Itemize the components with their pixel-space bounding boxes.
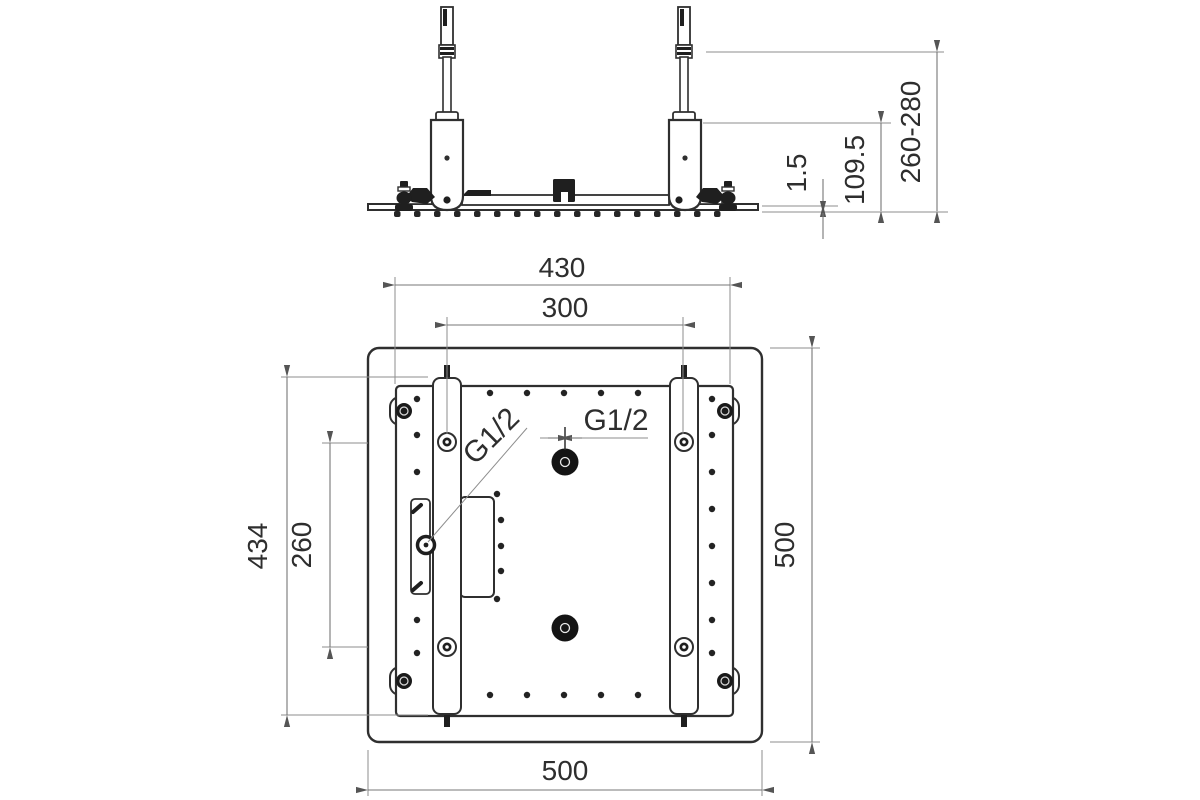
plan-view: G1/2 G1/2 430 300 434 260 <box>242 252 820 796</box>
rod-thread-mark <box>680 9 684 26</box>
label-inlet-top: G1/2 <box>583 404 648 437</box>
hanger-right <box>669 7 725 210</box>
corner-bolt <box>717 403 733 419</box>
bolt-base <box>719 204 737 211</box>
nut-band <box>677 52 691 55</box>
technical-drawing-page: 260-280 109.5 1.5 <box>0 0 1200 800</box>
nut-band <box>440 52 454 55</box>
dim-outer-height: 500 <box>769 522 800 569</box>
dim-height-range: 260-280 <box>895 81 926 184</box>
cylinder-pivot <box>675 196 682 203</box>
dim-rail-spacing: 300 <box>542 292 589 323</box>
adjust-nut <box>676 45 692 58</box>
cylinder-hole <box>444 155 449 160</box>
rail-hole <box>438 638 456 656</box>
dim-frame-height: 434 <box>242 523 273 570</box>
dim-body-height: 109.5 <box>839 135 870 205</box>
elevation-view: 260-280 109.5 1.5 <box>368 7 948 239</box>
cylinder-pivot <box>443 196 450 203</box>
rod-shaft <box>680 57 688 113</box>
corner-bolt <box>396 403 412 419</box>
slider-cylinder <box>669 120 701 210</box>
rail-right <box>670 378 698 714</box>
dim-outer-width: 500 <box>542 755 589 786</box>
bolt-base <box>395 204 413 211</box>
hanger-left <box>406 7 463 210</box>
nut-band <box>677 47 691 50</box>
dim-hole-spacing: 260 <box>286 522 317 569</box>
fixing-bolt-right <box>719 181 737 211</box>
rail-hole <box>675 433 693 451</box>
bolt-collar <box>722 187 734 191</box>
cylinder-hole <box>682 155 687 160</box>
rod-thread-mark <box>443 9 447 26</box>
bolt-head <box>397 192 412 205</box>
fixing-bolt-left <box>395 181 413 211</box>
plate-cutout <box>460 497 494 597</box>
screw-tips-row <box>394 211 721 217</box>
adjust-nut <box>439 45 455 58</box>
water-inlet-top <box>552 449 579 476</box>
shower-mount-technical-drawing: 260-280 109.5 1.5 <box>0 0 1200 800</box>
bar-wedge <box>462 190 491 196</box>
bolt-head <box>721 192 736 205</box>
corner-bolt <box>717 673 733 689</box>
dim-frame-width: 430 <box>539 252 586 283</box>
dim-plate-thickness: 1.5 <box>781 154 812 193</box>
center-clip-notch <box>561 192 568 202</box>
nut-band <box>440 47 454 50</box>
elevation-dimensions: 260-280 109.5 1.5 <box>781 52 937 239</box>
side-inlet-bolt <box>418 537 435 554</box>
water-inlet-bottom <box>552 615 579 642</box>
rail-hole <box>438 433 456 451</box>
rod-shaft <box>443 57 451 113</box>
rail-hole <box>675 638 693 656</box>
bolt-collar <box>398 187 410 191</box>
corner-bolt <box>396 673 412 689</box>
